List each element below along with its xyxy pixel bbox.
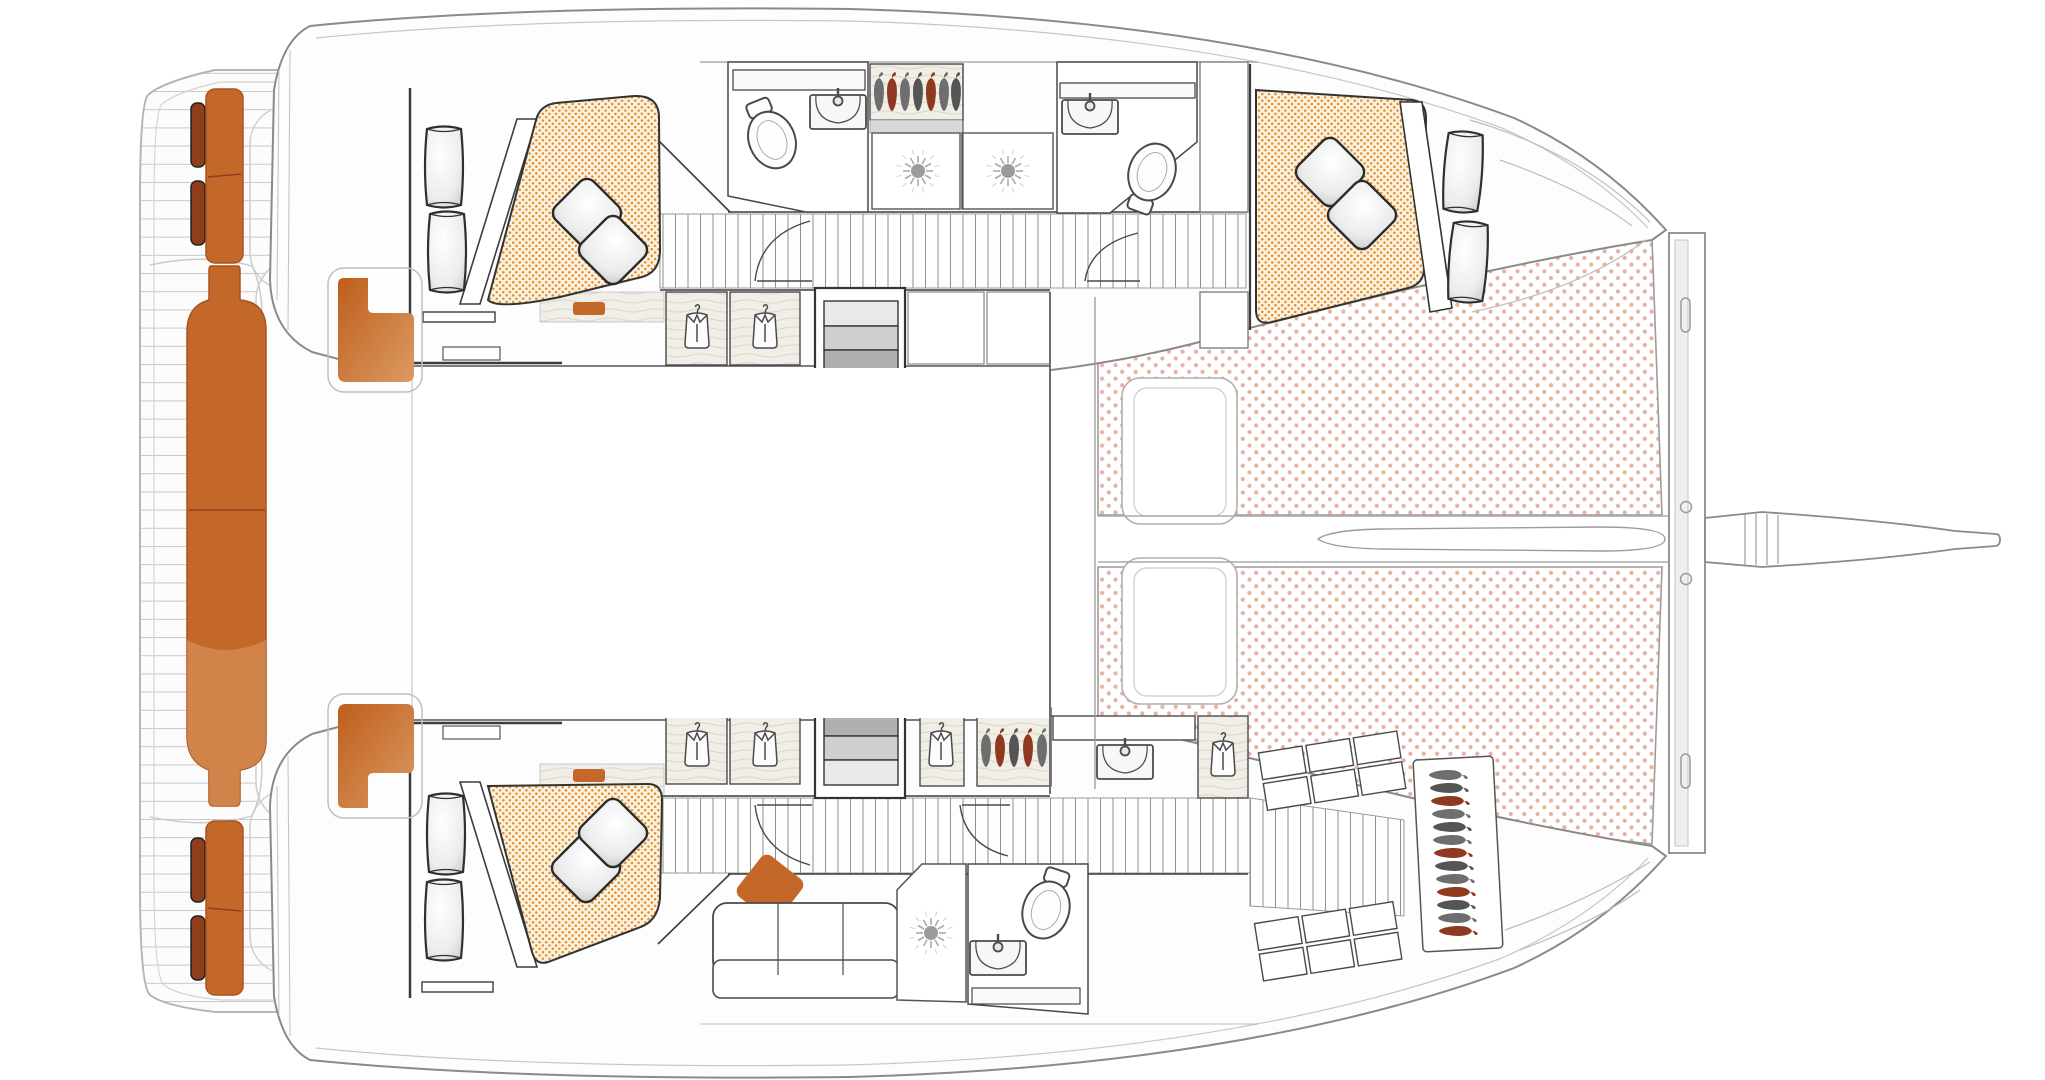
sink-icon: [1097, 738, 1153, 779]
locker: [443, 347, 500, 360]
sofa-seat-front: [713, 960, 899, 998]
shower-sunburst-icon: [987, 150, 1030, 193]
foredeck-pad-bottom-inner: [1134, 568, 1226, 696]
bed-step: [573, 302, 605, 315]
transom-bolster: [191, 916, 205, 980]
shelf-divider: [870, 120, 963, 133]
vanity-mirror: [972, 988, 1080, 1004]
vanity-mirror: [733, 70, 865, 90]
galley-counter: [987, 292, 1050, 364]
berth-bolster: [425, 880, 463, 961]
transom-bolster: [191, 838, 205, 902]
catamaran-deck-plan: [0, 0, 2045, 1080]
bow-sunpad-bolster: [1441, 130, 1485, 213]
salon-floor: [412, 368, 1050, 718]
hull-top-corridor: [660, 214, 1246, 288]
galley-counter: [908, 292, 984, 364]
sink-icon: [1062, 93, 1118, 134]
head-aft-top: [728, 62, 868, 212]
foredeck-pad-top-inner: [1134, 388, 1226, 516]
crossbeam: [1669, 233, 1705, 853]
berth-bolster: [428, 212, 466, 293]
transom-bolster: [191, 103, 205, 167]
sink-icon: [810, 88, 866, 129]
locker-column: [1200, 292, 1248, 348]
bed-step: [573, 769, 605, 782]
shelf: [422, 982, 493, 992]
shelf: [423, 312, 495, 322]
transom-bolster: [191, 181, 205, 245]
bow-sunpad-bolster: [1446, 220, 1490, 303]
bowsprit: [1705, 512, 2000, 567]
berth-bolster: [425, 127, 463, 208]
sink-icon: [970, 934, 1026, 975]
shower-sunburst-icon: [910, 912, 953, 955]
locker-column: [1200, 62, 1248, 212]
hull-bottom-corridor: [660, 798, 1250, 873]
berth-bolster: [427, 794, 465, 875]
anchor-chute: [1318, 527, 1665, 551]
deck-plan-canvas: [0, 0, 2045, 1080]
vanity-mirror: [1060, 83, 1195, 98]
locker: [443, 726, 500, 739]
shower-sunburst-icon: [897, 150, 940, 193]
vanity-counter: [1053, 716, 1195, 740]
